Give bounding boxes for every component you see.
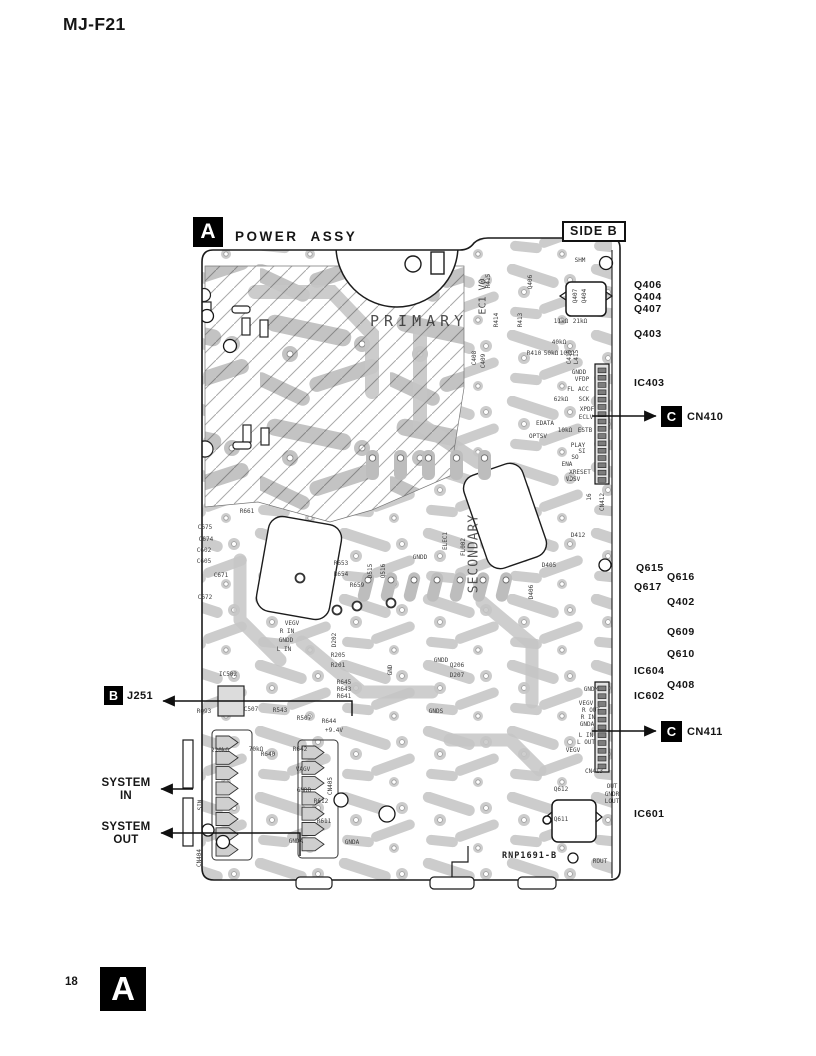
- board-label: VEGV: [566, 748, 580, 754]
- board-label: SI: [578, 449, 585, 455]
- board-label: Q206: [450, 663, 464, 669]
- page-title: MJ-F21: [63, 14, 126, 35]
- board-label: C507: [244, 707, 258, 713]
- board-label: SCK: [579, 397, 590, 403]
- board-label: SHM: [575, 258, 586, 264]
- board-label: R IN: [280, 629, 294, 635]
- board-label: C409: [481, 354, 487, 368]
- board-label: Q406: [528, 275, 534, 289]
- system-out-line2: OUT: [113, 834, 138, 846]
- board-label: D207: [450, 673, 464, 679]
- callout-system-in: SYSTEMIN: [95, 777, 157, 803]
- transformer-circle: [336, 185, 458, 307]
- system-in-line2: IN: [120, 790, 132, 802]
- board-label: GNDS: [429, 709, 443, 715]
- board-label: D202: [332, 633, 338, 647]
- board-label: Q611: [554, 817, 568, 823]
- board-label: D515: [368, 564, 374, 578]
- board-label: L IN: [277, 647, 291, 653]
- board-label: R654: [334, 572, 348, 578]
- board-label: GNDD: [413, 555, 427, 561]
- board-label: R205: [331, 653, 345, 659]
- board-label: 62kΩ: [554, 397, 568, 403]
- board-label: 50kΩ: [544, 351, 558, 357]
- board-label: LOUT: [605, 799, 619, 805]
- board-label: R611: [317, 819, 331, 825]
- board-label: ECLV: [579, 415, 593, 421]
- board-label: D412: [571, 533, 585, 539]
- board-label: GNDD: [297, 788, 311, 794]
- side-label: SIDE B: [562, 221, 626, 242]
- board-label: VAGV: [296, 767, 310, 773]
- callout-badge-b: B: [104, 686, 123, 705]
- board-label: C605: [197, 559, 211, 565]
- board-label: GNDM: [584, 687, 598, 693]
- callout-badge-c1: C: [661, 406, 682, 427]
- board-label: R415: [486, 274, 492, 288]
- callout-q407: Q407: [634, 303, 662, 315]
- board-interior: [191, 185, 613, 882]
- board-label: 21kΩ: [573, 319, 587, 325]
- board-label: 40kΩ: [552, 340, 566, 346]
- board-label: R410: [527, 351, 541, 357]
- board-label: D405: [542, 563, 556, 569]
- board-label: CN412: [600, 493, 606, 511]
- board-label: D406: [529, 585, 535, 599]
- board-label: C674: [199, 537, 213, 543]
- board-label: L415: [574, 350, 580, 364]
- board-label: Q404: [582, 289, 588, 303]
- board-label: C675: [198, 525, 212, 531]
- page-number: 18: [65, 976, 78, 988]
- isolation-slot: [254, 514, 344, 621]
- board-label: GNDA: [289, 839, 303, 845]
- callout-q406: Q406: [634, 279, 662, 291]
- system-in-line1: SYSTEM: [101, 777, 150, 789]
- callout-badge-c2: C: [661, 721, 682, 742]
- secondary-zone-label: SECONDARY: [467, 498, 482, 610]
- connector-cn412: [595, 364, 609, 484]
- board-label: GND: [388, 665, 394, 676]
- footer-badge-a: A: [100, 967, 146, 1011]
- callout-j251: J251: [127, 690, 153, 702]
- callout-cn410: CN410: [687, 411, 723, 423]
- board-label: R641: [337, 694, 351, 700]
- board-label: R640: [261, 752, 275, 758]
- board-label: Q516: [381, 564, 387, 578]
- board-label: R653: [334, 561, 348, 567]
- board-label: R612: [314, 799, 328, 805]
- section-badge-a: A: [193, 217, 223, 247]
- board-label: VFDP: [575, 377, 589, 383]
- board-label: 11kΩ: [554, 319, 568, 325]
- assembly-title: POWER ASSY: [235, 229, 357, 244]
- callout-q617: Q617: [634, 581, 662, 593]
- callout-system-out: SYSTEMOUT: [95, 821, 157, 847]
- board-label: ROUT: [593, 859, 607, 865]
- board-label: VDSV: [566, 477, 580, 483]
- callout-cn411: CN411: [687, 726, 723, 738]
- board-label: GNDD: [434, 658, 448, 664]
- board-label: R093: [197, 709, 211, 715]
- board-label: Q407: [573, 289, 579, 303]
- board-label: R201: [331, 663, 345, 669]
- callout-ic604: IC604: [634, 665, 665, 677]
- board-label: 220kΩ: [211, 748, 229, 754]
- board-label: R414: [494, 313, 500, 327]
- primary-zone-label: PRIMARY: [370, 312, 468, 330]
- board-label: ELEC1: [443, 532, 449, 550]
- board-label: C408: [472, 351, 478, 365]
- callout-q616: Q616: [667, 571, 695, 583]
- board-label: Q612: [554, 787, 568, 793]
- board-label: GNDA: [580, 722, 594, 728]
- callout-ic601: IC601: [634, 808, 665, 820]
- callout-ic403: IC403: [634, 377, 665, 389]
- board-label: IC502: [219, 672, 237, 678]
- callout-q610: Q610: [667, 648, 695, 660]
- board-label: C602: [197, 548, 211, 554]
- callout-q402: Q402: [667, 596, 695, 608]
- board-label: R507: [297, 716, 311, 722]
- board-label: FL002: [461, 538, 467, 556]
- callout-q615: Q615: [636, 562, 664, 574]
- board-label: ESTB: [578, 428, 592, 434]
- board-label: 16: [587, 493, 593, 500]
- callout-q609: Q609: [667, 626, 695, 638]
- board-label: XPDF: [580, 407, 594, 413]
- board-artwork: [0, 0, 816, 1056]
- board-label: OUT: [607, 784, 618, 790]
- board-label: OPTSV: [529, 434, 547, 440]
- system-out-line1: SYSTEM: [101, 821, 150, 833]
- callout-q408: Q408: [667, 679, 695, 691]
- board-label: L OUT: [577, 740, 595, 746]
- connector-cn413: [595, 682, 609, 772]
- board-label: CN404: [197, 849, 203, 867]
- board-label: C671: [214, 573, 228, 579]
- board-label: GNDA: [345, 840, 359, 846]
- board-label: SIN: [198, 800, 204, 811]
- callout-q404: Q404: [634, 291, 662, 303]
- board-label: R543: [273, 708, 287, 714]
- manual-page: { "page": { "title": "MJ-F21", "page_num…: [0, 0, 816, 1056]
- board-label: CN405: [328, 777, 334, 795]
- callout-ic602: IC602: [634, 690, 665, 702]
- board-label: 10kΩ: [558, 428, 572, 434]
- board-label: GNDD: [279, 638, 293, 644]
- board-label: EDATA: [536, 421, 554, 427]
- board-label: R659: [350, 583, 364, 589]
- board-label: VEGV: [285, 621, 299, 627]
- board-code: RNP1691-B: [502, 851, 557, 861]
- board-label: R413: [518, 313, 524, 327]
- board-label: C672: [198, 595, 212, 601]
- board-label: R644: [322, 719, 336, 725]
- board-label: R661: [240, 509, 254, 515]
- board-label: R642: [293, 747, 307, 753]
- board-label: ENA: [562, 462, 573, 468]
- board-label: CN413: [585, 769, 603, 775]
- board-label: +9.4V: [325, 728, 343, 734]
- board-label: FL ACC: [567, 387, 589, 393]
- callout-q403: Q403: [634, 328, 662, 340]
